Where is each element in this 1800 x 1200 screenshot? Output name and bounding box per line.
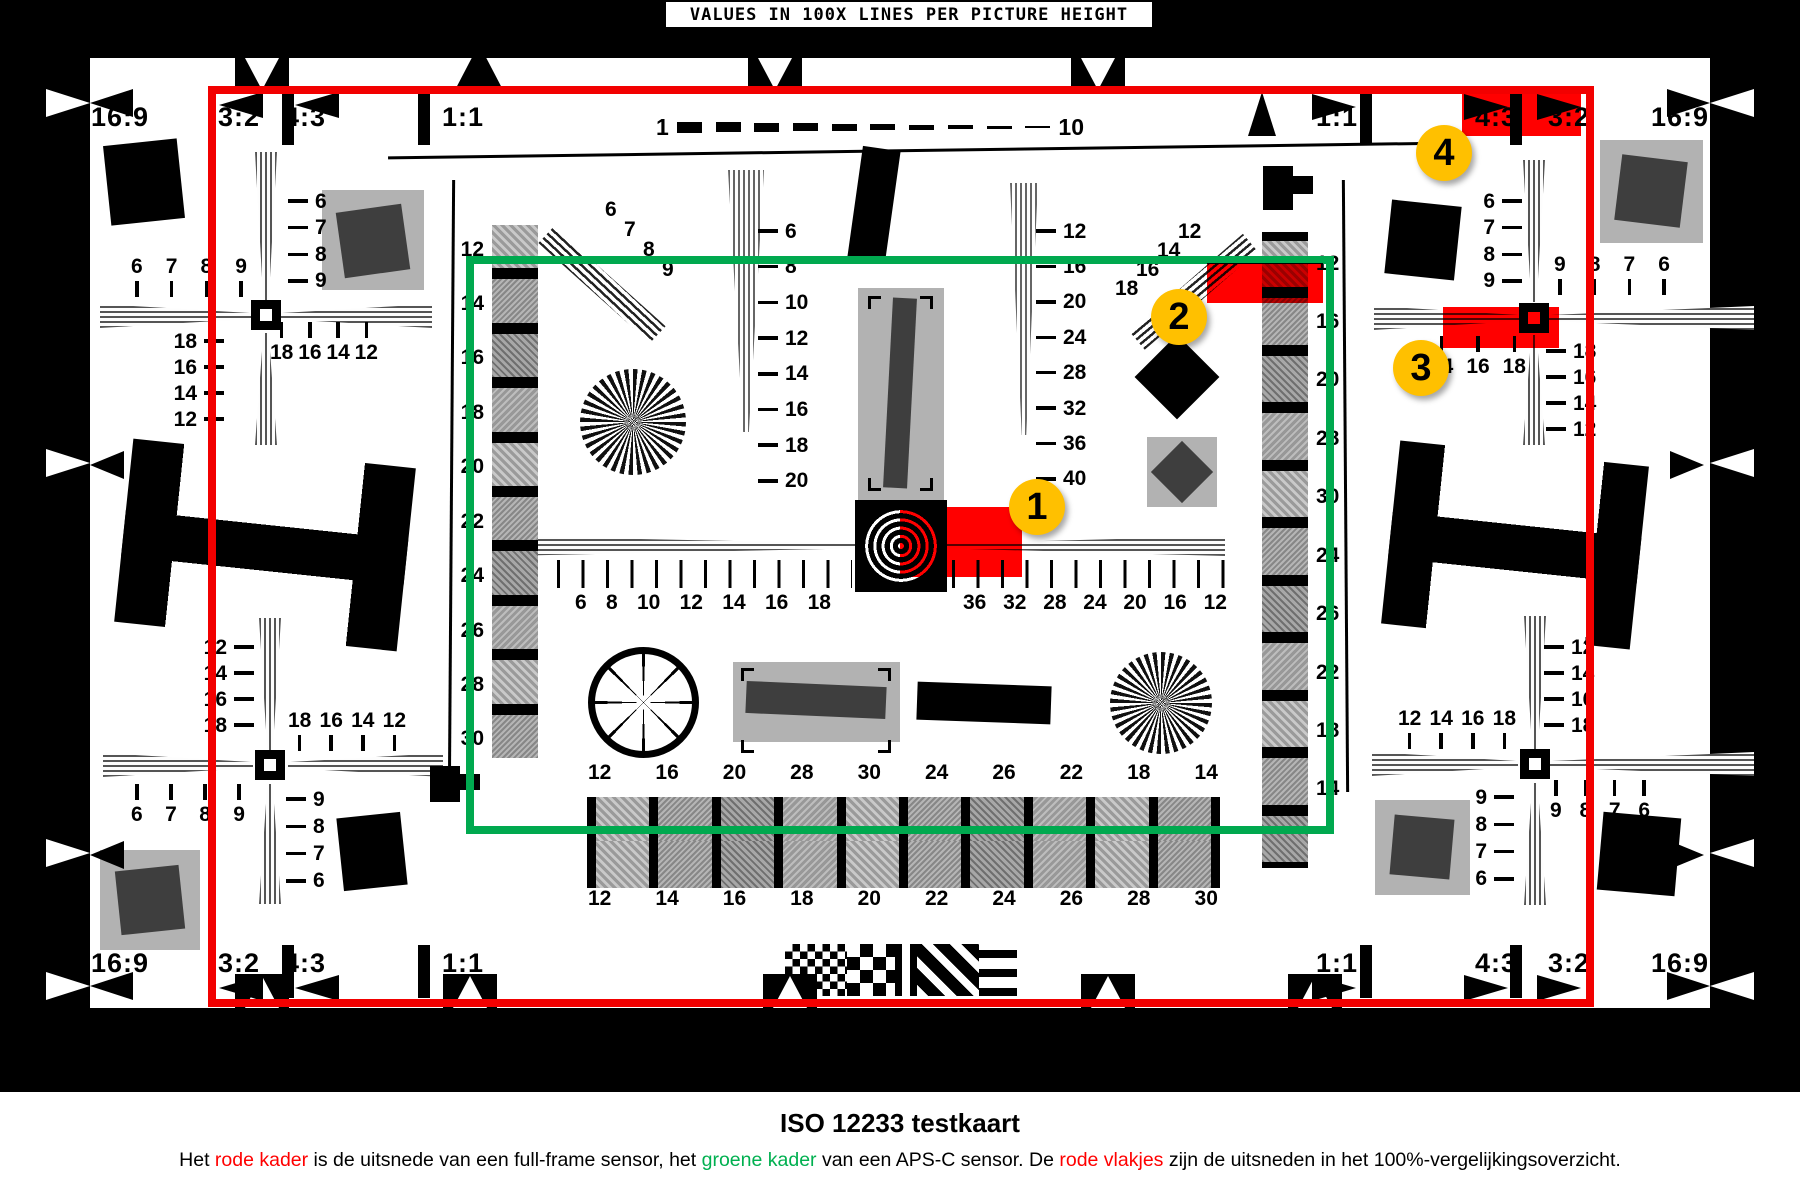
scale-number: 18 — [785, 435, 808, 456]
scale-label: 18 — [790, 888, 813, 914]
scale-label: 9 — [288, 270, 346, 292]
scale-number: 20 — [785, 470, 808, 491]
scale-label: 16 — [723, 888, 746, 914]
scale-label: 18 — [808, 592, 831, 618]
scale-number: 12 — [1571, 637, 1594, 658]
scale-label: 6 — [131, 256, 143, 300]
scale-number: 16 — [655, 762, 678, 783]
scale-number: 20 — [858, 888, 881, 909]
scale-bottom-strip-top: 12162028302426221814 — [588, 762, 1218, 788]
crop-badge-4: 4 — [1416, 125, 1472, 181]
scale-label: 24 — [461, 565, 484, 587]
hatch-segment — [1033, 841, 1095, 888]
hatch-segment — [846, 797, 908, 841]
scale-number: 14 — [461, 293, 484, 314]
scale-number: 6 — [575, 592, 587, 613]
scale-label: 6 — [575, 592, 587, 618]
scale-label: 28 — [1043, 592, 1066, 618]
scale-number: 14 — [204, 663, 227, 684]
scale-number: 14 — [1571, 663, 1594, 684]
scale-right-strip: 12162028302426221814 — [1316, 252, 1362, 800]
scale-number: 8 — [1589, 254, 1601, 275]
scale-label: 22 — [1060, 762, 1083, 788]
scale-label: 18 — [270, 322, 293, 368]
caption-segment: is de uitsnede van een full-frame sensor… — [308, 1149, 701, 1171]
black-triangle-icon — [1670, 451, 1704, 479]
scale-label: 14 — [168, 382, 224, 404]
scale-bl-mid: 18161412 — [288, 710, 406, 756]
scale-number: 7 — [1609, 800, 1621, 821]
registration-mark-icon — [868, 478, 881, 491]
scale-label: 14 — [461, 292, 484, 314]
scale-label: 8 — [201, 256, 213, 300]
scale-label: 12 — [196, 636, 254, 658]
scale-number: 16 — [204, 689, 227, 710]
scale-number: 16 — [461, 347, 484, 368]
scale-label: 6 — [1456, 868, 1514, 890]
scale-label: 9 — [1554, 254, 1566, 298]
scale-label: 36 — [1036, 433, 1106, 455]
hatch-segment — [908, 797, 970, 841]
scale-label: 14 — [196, 662, 254, 684]
scale-number: 30 — [1195, 888, 1218, 909]
white-notch-icon — [773, 976, 807, 1008]
scale-label: 20 — [758, 470, 820, 492]
black-square-mark — [1384, 200, 1461, 281]
scale-label: 9 — [1550, 780, 1562, 826]
scale-label: 24 — [992, 888, 1015, 914]
scale-label: 16 — [298, 322, 321, 368]
hatch-segment — [492, 497, 538, 551]
scale-label: 12 — [1398, 708, 1421, 754]
black-triangle-icon — [1248, 92, 1276, 136]
scale-number: 18 — [1571, 715, 1594, 736]
scale-label: 12 — [1178, 220, 1201, 244]
scale-number: 14 — [1195, 762, 1218, 783]
scale-number: 9 — [233, 804, 245, 825]
scale-number: 16 — [1571, 689, 1594, 710]
scale-number: 7 — [315, 217, 327, 238]
aspect-label-bottom: 1:1 — [442, 948, 484, 979]
hatch-segment — [1095, 797, 1157, 841]
scale-label: 12 — [383, 710, 406, 756]
scale-number: 14 — [1573, 393, 1596, 414]
scale-label: 18 — [1127, 762, 1150, 788]
hatch-segment — [492, 551, 538, 605]
edge-bowtie-icon — [46, 839, 90, 867]
scale-label: 30 — [1316, 486, 1362, 508]
scale-label: 18 — [461, 401, 484, 423]
dark-inset — [1389, 814, 1454, 879]
bottom-resolution-strip-lower — [587, 841, 1220, 888]
scale-label: 24 — [1083, 592, 1106, 618]
hatch-segment — [596, 841, 658, 888]
aspect-label-bottom: 1:1 — [1316, 948, 1358, 979]
scale-label: 16 — [1461, 708, 1484, 754]
scale-label: 8 — [286, 815, 344, 837]
red-patch-4 — [1462, 88, 1581, 136]
scale-number: 12 — [355, 342, 378, 363]
scale-number: 20 — [723, 762, 746, 783]
scale-label: 26 — [461, 619, 484, 641]
scale-number: 14 — [722, 592, 745, 613]
registration-mark-icon — [920, 478, 933, 491]
aspect-label-bottom: 4:3 — [284, 948, 326, 979]
scale-label: 20 — [858, 888, 881, 914]
scale-number: 7 — [1483, 217, 1495, 238]
scale-label: 36 — [963, 592, 986, 618]
crop-badge-1: 1 — [1009, 479, 1065, 535]
scale-label: 22 — [461, 510, 484, 532]
caption-segment: rode kader — [215, 1149, 308, 1171]
scale-number: 6 — [1475, 868, 1487, 889]
scale-number: 18 — [204, 715, 227, 736]
scale-bottom-strip-bottom: 12141618202224262830 — [588, 888, 1218, 914]
red-patch-3 — [1443, 307, 1559, 348]
aspect-label-bottom: 3:2 — [218, 948, 260, 979]
scale-number: 24 — [992, 888, 1015, 909]
hatch-segment — [783, 841, 845, 888]
scale-number: 18 — [1573, 341, 1596, 362]
hatch-segment — [1158, 841, 1211, 888]
scale-number: 28 — [461, 674, 484, 695]
dark-inset — [1614, 154, 1688, 228]
scale-number: 7 — [1624, 254, 1636, 275]
crosshair-square-icon — [1520, 749, 1550, 779]
scale-tl-left: 18161412 — [168, 330, 224, 430]
scale-label: 32 — [1036, 397, 1106, 419]
scale-label: 28 — [1127, 888, 1150, 914]
scale-number: 8 — [1475, 814, 1487, 835]
scale-label: 16 — [1136, 258, 1159, 282]
horizontal-bars-icon — [979, 944, 1017, 996]
scale-number: 24 — [925, 762, 948, 783]
scale-br-bottom: 9876 — [1550, 780, 1650, 826]
caption-segment: groene kader — [702, 1149, 817, 1171]
scale-label: 16 — [461, 347, 484, 369]
registration-mark-icon — [741, 668, 754, 681]
registration-mark-icon — [868, 296, 881, 309]
scale-label: 12 — [680, 592, 703, 618]
scale-label: 9 — [286, 788, 344, 810]
caption: ISO 12233 testkaart Het rode kader is de… — [0, 1092, 1800, 1200]
scale-number: 22 — [925, 888, 948, 909]
hatch-segment — [783, 797, 845, 841]
scale-label: 20 — [1316, 369, 1362, 391]
scale-label: 28 — [1316, 427, 1362, 449]
scale-label: 26 — [992, 762, 1015, 788]
scale-label: 30 — [1195, 888, 1218, 914]
scale-number: 8 — [313, 816, 325, 837]
hatch-segment — [1262, 816, 1308, 862]
scale-number: 6 — [1483, 191, 1495, 212]
scale-number: 20 — [1123, 592, 1146, 613]
scale-label: 22 — [925, 888, 948, 914]
scale-number: 12 — [680, 592, 703, 613]
scale-label: 18 — [168, 330, 224, 352]
scale-number: 6 — [131, 256, 143, 277]
scale-label: 9 — [233, 784, 245, 830]
hatch-segment — [1262, 701, 1308, 758]
hatch-segment — [492, 279, 538, 333]
spoke-wheel-icon — [588, 647, 699, 758]
scale-label: 7 — [1462, 217, 1522, 239]
dark-inset — [115, 865, 185, 935]
ruler-dash — [716, 122, 741, 132]
scale-br-right: 12141618 — [1544, 636, 1606, 736]
scale-number: 14 — [655, 888, 678, 909]
scale-label: 14 — [758, 363, 820, 385]
scale-label: 18 — [758, 434, 820, 456]
scale-number: 28 — [790, 762, 813, 783]
scale-number: 9 — [315, 270, 327, 291]
scale-label: 7 — [286, 843, 344, 865]
scale-number: 12 — [383, 710, 406, 731]
scale-number: 16 — [298, 342, 321, 363]
chart-title-plate: VALUES IN 100X LINES PER PICTURE HEIGHT — [666, 2, 1152, 27]
scale-number: 24 — [461, 565, 484, 586]
scale-label: 18 — [1316, 720, 1362, 742]
black-triangle-icon — [90, 451, 124, 479]
scale-number: 12 — [1398, 708, 1421, 729]
scale-label: 28 — [461, 674, 484, 696]
scale-number: 12 — [174, 409, 197, 430]
scale-label: 18 — [196, 714, 254, 736]
scale-ruler-left: 681012141618 — [575, 592, 831, 618]
scale-label: 10 — [637, 592, 660, 618]
hatch-segment — [492, 606, 538, 660]
scale-label: 14 — [1430, 708, 1453, 754]
white-notch-icon — [453, 976, 487, 1008]
ruler-dash — [677, 122, 702, 133]
hatch-segment — [492, 660, 538, 714]
scale-number: 28 — [1316, 428, 1339, 449]
black-square-mark — [418, 92, 430, 145]
black-square-mark — [418, 945, 430, 998]
ruler-dash — [832, 124, 857, 131]
scale-label: 8 — [1579, 780, 1591, 826]
scale-number: 26 — [992, 762, 1015, 783]
scale-label: 12 — [1036, 220, 1106, 242]
caption-segment: Het — [179, 1149, 215, 1171]
scale-label: 12 — [461, 238, 484, 260]
right-resolution-strip — [1262, 232, 1308, 868]
diagonal-bars-icon — [917, 944, 979, 996]
black-square-mark — [103, 138, 185, 225]
hatch-segment — [658, 797, 720, 841]
scale-number: 14 — [1430, 708, 1453, 729]
scale-number: 10 — [785, 292, 808, 313]
scale-label: 16 — [1546, 366, 1606, 388]
scale-number: 6 — [1638, 800, 1650, 821]
bottom-resolution-strip-upper — [587, 797, 1220, 841]
scale-center-right-col: 1216202428323640 — [1036, 220, 1106, 490]
scale-label: 24 — [1316, 544, 1362, 566]
scale-label: 12 — [588, 888, 611, 914]
iso12233-test-chart-page: VALUES IN 100X LINES PER PICTURE HEIGHT … — [0, 0, 1800, 1200]
scale-number: 6 — [1658, 254, 1670, 275]
scale-number: 16 — [785, 399, 808, 420]
scale-label: 14 — [1195, 762, 1218, 788]
scale-number: 18 — [1316, 720, 1339, 741]
scale-number: 18 — [461, 402, 484, 423]
aspect-label-top: 16:9 — [91, 102, 149, 133]
scale-label: 30 — [461, 728, 484, 750]
scale-number: 40 — [1063, 468, 1086, 489]
scale-left-strip: 12141618202224262830 — [432, 238, 484, 750]
hatch-segment — [846, 841, 908, 888]
hatch-segment — [908, 841, 970, 888]
tick-ruler — [508, 560, 852, 588]
scale-number: 8 — [199, 804, 211, 825]
scale-label: 20 — [1036, 291, 1106, 313]
scale-number: 12 — [1573, 419, 1596, 440]
scale-label: 9 — [1462, 270, 1522, 292]
black-square-mark — [460, 774, 480, 790]
scale-bl-left: 12141618 — [196, 636, 254, 736]
scale-number: 30 — [858, 762, 881, 783]
scale-label: 14 — [1157, 239, 1180, 263]
scale-number: 22 — [1060, 762, 1083, 783]
scale-number: 16 — [1063, 256, 1086, 277]
dash-ruler-start-label: 1 — [656, 114, 669, 141]
scale-number: 28 — [1127, 888, 1150, 909]
scale-number: 16 — [320, 710, 343, 731]
scale-number: 14 — [785, 363, 808, 384]
siemens-star-icon — [580, 369, 686, 475]
scale-number: 12 — [588, 888, 611, 909]
aspect-label-top: 1:1 — [442, 102, 484, 133]
edge-bowtie-icon — [1710, 449, 1754, 477]
caption-title: ISO 12233 testkaart — [0, 1108, 1800, 1139]
hatch-segment — [492, 388, 538, 442]
hatch-segment — [721, 841, 783, 888]
red-patch-2 — [1207, 263, 1323, 303]
registration-mark-icon — [878, 740, 891, 753]
scale-number: 6 — [785, 221, 797, 242]
scale-label: 12 — [1544, 636, 1606, 658]
hatch-segment — [492, 225, 538, 279]
scale-number: 12 — [204, 637, 227, 658]
scale-label: 18 — [1493, 708, 1516, 754]
scale-number: 14 — [174, 383, 197, 404]
scale-label: 6 — [1462, 190, 1522, 212]
edge-bowtie-icon — [46, 449, 90, 477]
scale-label: 16 — [320, 710, 343, 756]
scale-number: 16 — [1316, 311, 1339, 332]
scale-label: 16 — [1316, 310, 1362, 332]
crop-badge-2: 2 — [1151, 289, 1207, 345]
scale-label: 10 — [758, 291, 820, 313]
scale-number: 9 — [1483, 270, 1495, 291]
aspect-label-bottom: 16:9 — [1651, 948, 1709, 979]
scale-label: 8 — [288, 243, 346, 265]
scale-number: 14 — [351, 710, 374, 731]
hatch-segment — [1262, 471, 1308, 528]
scale-number: 9 — [235, 256, 247, 277]
scale-label: 16 — [765, 592, 788, 618]
scale-number: 22 — [1316, 662, 1339, 683]
hatch-segment — [1262, 643, 1308, 700]
edge-bowtie-icon — [1710, 89, 1754, 117]
hatch-segment — [658, 841, 720, 888]
scale-label: 7 — [1456, 841, 1514, 863]
edge-bowtie-icon — [1710, 839, 1754, 867]
scale-label: 14 — [351, 710, 374, 756]
hatch-segment — [492, 715, 538, 758]
scale-number: 9 — [1554, 254, 1566, 275]
scale-number: 16 — [765, 592, 788, 613]
scale-number: 24 — [1063, 327, 1086, 348]
black-triangle-icon — [1670, 841, 1704, 869]
scale-number: 16 — [1466, 356, 1489, 377]
scale-number: 26 — [1060, 888, 1083, 909]
hatch-segment — [970, 797, 1032, 841]
scale-number: 36 — [1063, 433, 1086, 454]
aspect-label-bottom: 4:3 — [1475, 948, 1517, 979]
scale-label: 6 — [758, 220, 820, 242]
scale-number: 18 — [808, 592, 831, 613]
left-resolution-strip — [492, 225, 538, 758]
hatch-segment — [1033, 797, 1095, 841]
scale-label: 7 — [288, 217, 346, 239]
scale-number: 16 — [723, 888, 746, 909]
scale-number: 7 — [166, 256, 178, 277]
scale-label: 7 — [165, 784, 177, 830]
ruler-dash — [754, 123, 779, 132]
scale-label: 7 — [624, 218, 636, 242]
scale-number: 20 — [1063, 291, 1086, 312]
scale-number: 18 — [790, 888, 813, 909]
scale-number: 12 — [1063, 221, 1086, 242]
scale-tl-bottom: 18161412 — [270, 322, 378, 368]
scale-label: 20 — [723, 762, 746, 788]
scale-number: 18 — [1503, 356, 1526, 377]
scale-ruler-right: 36322824201612 — [963, 592, 1227, 618]
scale-number: 16 — [1461, 708, 1484, 729]
scale-number: 9 — [1550, 800, 1562, 821]
scale-label: 18 — [288, 710, 311, 756]
scale-bl-right: 9876 — [286, 788, 344, 892]
hatch-segment — [492, 334, 538, 388]
scale-label: 26 — [1060, 888, 1083, 914]
scale-label: 32 — [1003, 592, 1026, 618]
scale-tr-right: 18161412 — [1546, 340, 1606, 440]
scale-label: 9 — [1456, 786, 1514, 808]
scale-label: 30 — [858, 762, 881, 788]
ruler-dash — [1025, 126, 1050, 128]
scale-number: 24 — [1083, 592, 1106, 613]
hatch-segment — [596, 797, 658, 841]
dark-inset — [745, 681, 886, 719]
scale-number: 18 — [1127, 762, 1150, 783]
scale-label: 7 — [1609, 780, 1621, 826]
scale-label: 16 — [1036, 255, 1106, 277]
aspect-label-top: 4:3 — [284, 102, 326, 133]
dash-ruler-end-label: 10 — [1058, 114, 1084, 141]
scale-br-left: 9876 — [1456, 786, 1514, 890]
scale-number: 12 — [785, 328, 808, 349]
scale-label: 6 — [288, 190, 346, 212]
scale-number: 20 — [461, 456, 484, 477]
aspect-label-top: 16:9 — [1651, 102, 1709, 133]
scale-label: 8 — [1589, 254, 1601, 298]
hatch-segment — [1262, 298, 1308, 355]
scale-tl-right: 6789 — [288, 190, 346, 292]
scale-number: 16 — [1573, 367, 1596, 388]
scale-label: 6 — [1638, 780, 1650, 826]
hatch-segment — [1262, 413, 1308, 470]
